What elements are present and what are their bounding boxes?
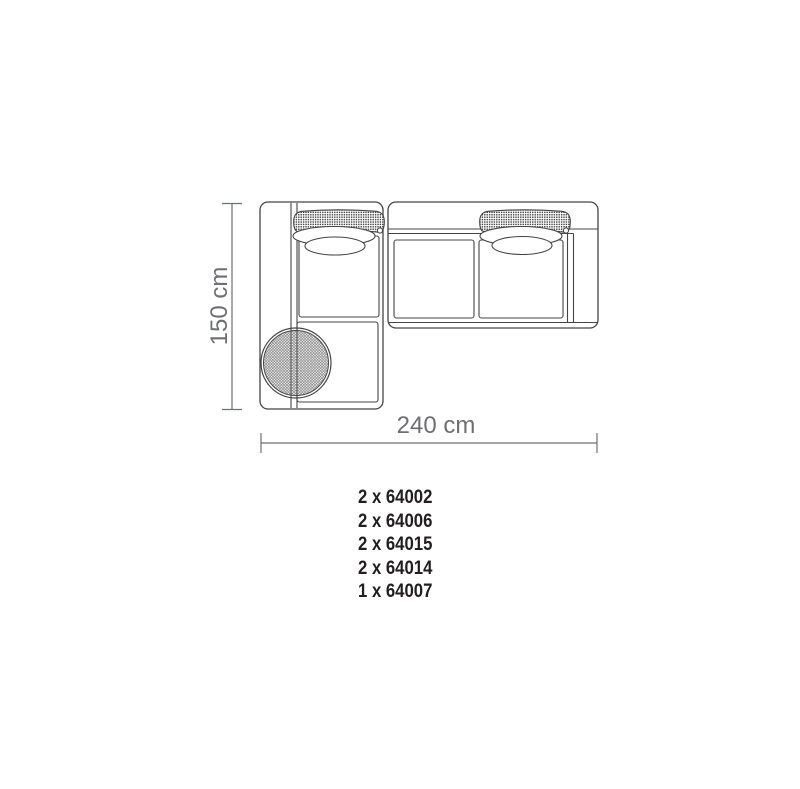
parts-list: 2 x 64002 2 x 64006 2 x 64015 2 x 64014 …: [358, 486, 432, 604]
width-dimension-label: 240 cm: [397, 414, 476, 438]
pillow-button: [563, 228, 568, 233]
part-item: 2 x 64006: [358, 510, 432, 534]
part-item: 2 x 64015: [358, 533, 432, 557]
part-item: 2 x 64014: [358, 557, 432, 581]
part-item: 2 x 64002: [358, 486, 432, 510]
round-cushion-small: [305, 237, 365, 255]
round-pouf: [261, 328, 331, 398]
height-dimension-label: 150 cm: [208, 267, 232, 346]
pouf-hatch: [264, 331, 328, 395]
pillow-button: [377, 228, 382, 233]
sofa-top-view-diagram: [0, 0, 800, 789]
round-cushion-small: [492, 237, 552, 255]
floor-plan-canvas: 150 cm 240 cm 2 x 64002 2 x 64006 2 x 64…: [0, 0, 800, 789]
part-item: 1 x 64007: [358, 580, 432, 604]
